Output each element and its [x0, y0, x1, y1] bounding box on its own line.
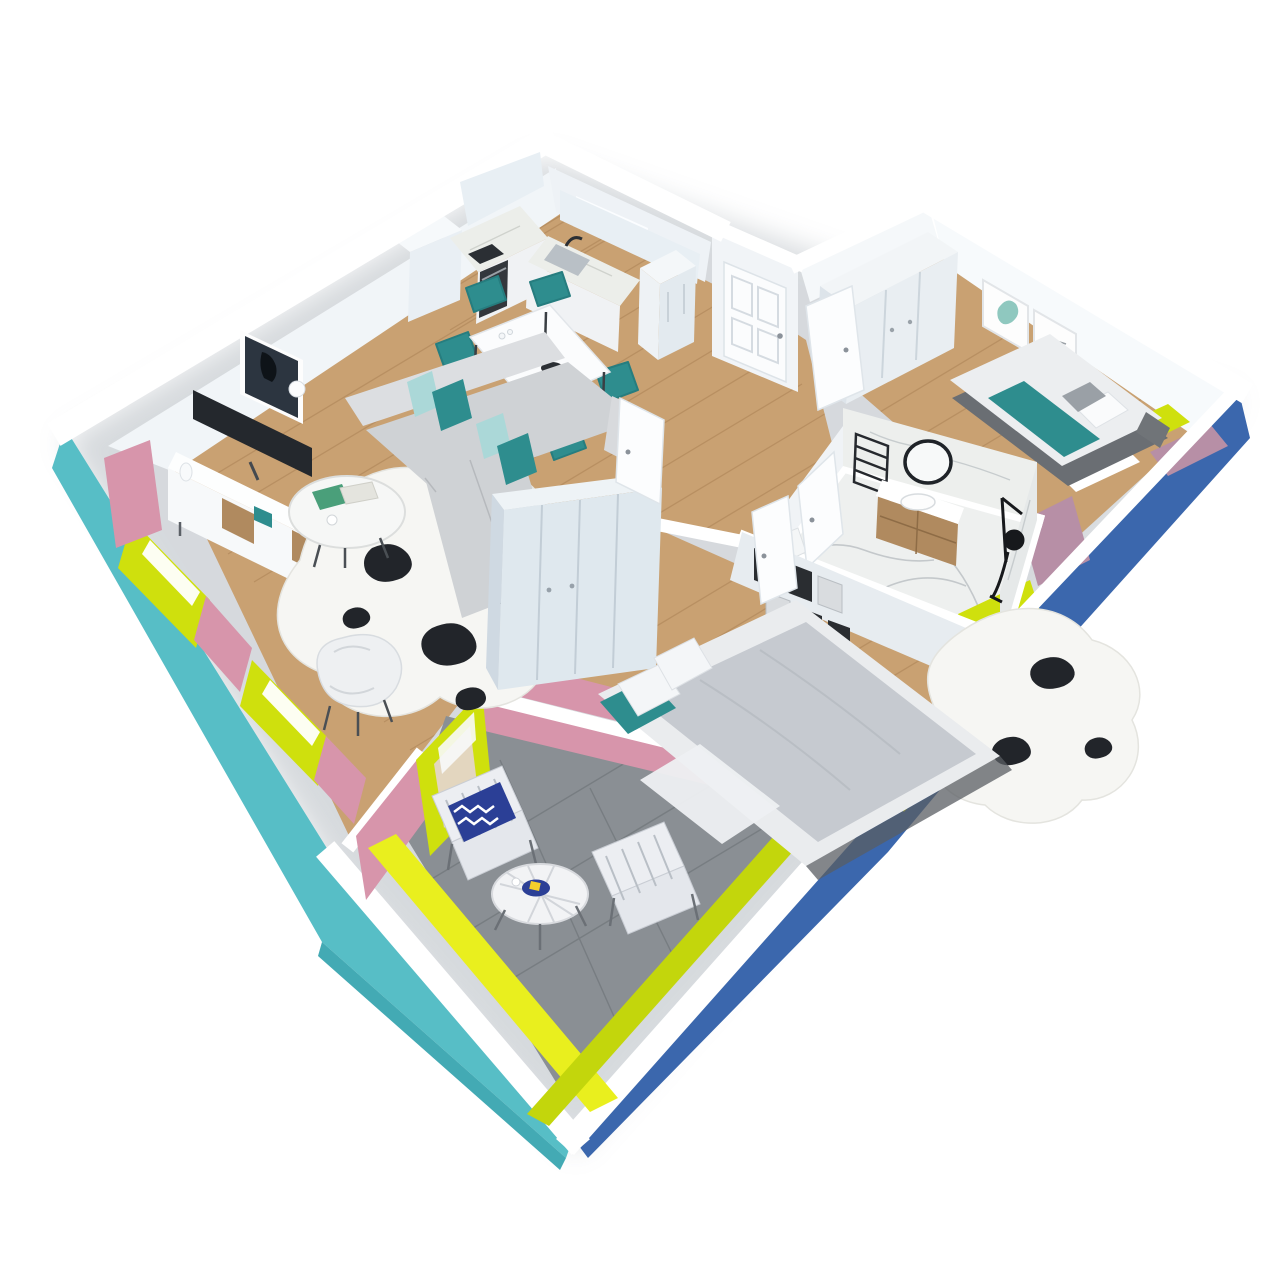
fridge-cabinet: [638, 250, 696, 360]
bathroom-mirror: [905, 441, 951, 483]
vase: [180, 463, 192, 481]
wardrobe-main: [486, 474, 662, 690]
bedroom-main-door: [752, 496, 797, 604]
floor-plan-render: [0, 0, 1280, 1280]
table-lamp: [289, 381, 305, 397]
